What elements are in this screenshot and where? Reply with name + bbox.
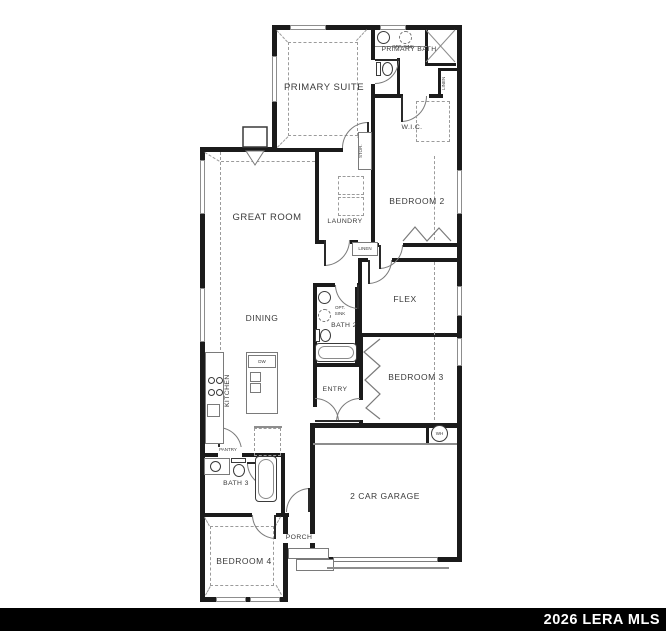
toilet-icon: [320, 329, 331, 342]
room-label-porch: PORCH: [280, 534, 318, 543]
bathtub-icon: [255, 456, 277, 502]
dishwasher-icon: DW: [248, 355, 276, 368]
cooktop-burner-icon: [216, 377, 223, 384]
refrigerator-icon: [254, 428, 281, 456]
closet-label-linen-hall: LINEN: [351, 246, 379, 252]
sink-icon: [377, 31, 390, 44]
cooktop-burner-icon: [208, 389, 215, 396]
room-label-dining: DINING: [237, 313, 287, 324]
kitchen-counter: [205, 352, 224, 444]
island-sink-icon: [250, 383, 261, 393]
sink-icon: [210, 461, 221, 472]
optional-sink-icon: [399, 31, 412, 44]
room-label-bedroom-3: BEDROOM 3: [374, 372, 458, 383]
porch-step: [296, 559, 334, 571]
room-label-pantry: PANTRY: [210, 447, 246, 453]
closet-label-linen: LINEN: [441, 70, 454, 97]
oven-icon: [207, 404, 220, 417]
dryer-icon: [338, 197, 364, 216]
room-label-bath-3: BATH 3: [222, 480, 250, 489]
sink-icon: [318, 291, 331, 304]
garage-apron-line: [327, 567, 449, 569]
island-sink-icon: [250, 372, 261, 382]
room-label-bedroom-4: BEDROOM 4: [205, 556, 283, 567]
toilet-icon: [233, 464, 245, 477]
washer-icon: [338, 176, 364, 195]
room-label-laundry: LAUNDRY: [320, 218, 370, 227]
water-heater-icon: WH: [431, 425, 448, 442]
porch-step: [288, 548, 329, 559]
room-label-kitchen: KITCHEN: [224, 366, 237, 416]
bathtub-icon: [315, 343, 357, 362]
mls-watermark-text: 2026 LERA MLS: [544, 612, 660, 628]
optional-sink-label: OPT. SINK: [332, 305, 348, 317]
room-label-wic: W.I.C.: [390, 124, 434, 133]
optional-sink-icon: [318, 309, 331, 322]
garage-door: [333, 557, 438, 562]
room-label-entry: ENTRY: [318, 386, 352, 395]
garage-soffit-line: [313, 443, 457, 445]
room-label-great-room: GREAT ROOM: [222, 212, 312, 224]
cooktop-burner-icon: [216, 389, 223, 396]
wic-shelving: [416, 101, 450, 142]
cooktop-burner-icon: [208, 377, 215, 384]
room-label-bath-2: BATH 2: [331, 322, 357, 331]
mls-watermark-bar: 2026 LERA MLS: [0, 608, 666, 631]
toilet-icon: [376, 62, 381, 76]
optional-sink-label: OPT. SINK: [388, 44, 418, 50]
fireplace-icon: [243, 127, 267, 165]
closet-label-storage: STOR.: [358, 135, 371, 167]
room-label-garage: 2 CAR GARAGE: [334, 491, 436, 502]
toilet-icon: [382, 62, 393, 76]
toilet-icon: [231, 458, 246, 463]
closet-rod-bedroom2-icon: [403, 227, 451, 241]
floor-plan: DW WH PRIMARY SUITE PRIMARY BATH W.I.C. …: [0, 0, 666, 631]
room-label-primary-suite: PRIMARY SUITE: [279, 82, 369, 94]
room-label-bedroom-2: BEDROOM 2: [375, 196, 459, 207]
room-label-flex: FLEX: [380, 294, 430, 305]
